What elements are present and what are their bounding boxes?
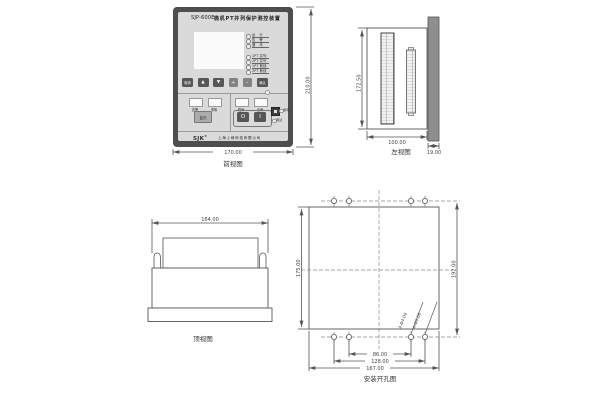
- mount-hole-ticks: [334, 196, 425, 343]
- mount-centerlines: [301, 190, 460, 349]
- key-plus: +: [229, 78, 239, 87]
- key-confirm: 确认: [257, 78, 268, 87]
- led-indicator: [246, 70, 251, 75]
- pt-led-row: 2PT 断线: [246, 69, 272, 74]
- led-indicator: [246, 44, 251, 49]
- mount-view: 175.00 192.00 86.00 128.00 167.00 4-Φ4.0…: [296, 190, 460, 383]
- front-view-caption: 前视图: [223, 159, 243, 168]
- top-clip-left: [154, 253, 160, 268]
- mount-dimension-lines: [298, 203, 457, 371]
- top-flange: [148, 308, 272, 322]
- side-body: [367, 28, 427, 129]
- device-model: SJP-600E: [191, 15, 215, 21]
- debug-label: 调试: [276, 118, 282, 122]
- key-down-icon: ▼: [213, 78, 224, 87]
- led-label: 2PT 断线: [252, 69, 269, 74]
- panel-indicator-dot: [265, 90, 270, 95]
- mount-hole-label-outer: 4-Φ6.00: [411, 312, 422, 330]
- switch-on-key: I: [254, 112, 266, 122]
- dim-top-width: 164.00: [201, 217, 219, 223]
- mount-view-caption: 安装开孔图: [364, 374, 397, 383]
- top-body: [152, 268, 268, 308]
- dim-mount-inner-span: 86.00: [373, 352, 387, 358]
- side-connector-tab: [409, 113, 414, 116]
- panel-divider-vertical: [230, 93, 231, 131]
- switch-off-key: O: [237, 112, 249, 122]
- dim-mount-mid-span: 128.00: [371, 359, 389, 365]
- reset-key: 复归: [194, 111, 212, 123]
- dim-mount-hole-rows: 192.00: [452, 261, 458, 279]
- dim-front-height: 210.00: [306, 77, 312, 95]
- comm-port-inner: [274, 110, 277, 113]
- comm-label: 通讯: [283, 108, 289, 112]
- status-led-row: 通 讯: [246, 43, 272, 48]
- device-front-panel: SJP-600E 微机PT并列保护测控装置 运 行 告 警 通 讯 1PT 并列…: [178, 12, 288, 141]
- side-terminal-block: [381, 33, 394, 124]
- top-view-caption: 顶视图: [193, 334, 213, 343]
- device-title: 微机PT并列保护测控装置: [214, 15, 281, 22]
- mount-hole-label-inner: 4-Φ4.00: [397, 312, 408, 330]
- led-label: 通 讯: [252, 43, 269, 48]
- logo-strip-divider: [178, 131, 288, 132]
- drawing-sheet: 170.00 210.00 前视图 172.50 100.00: [0, 0, 600, 400]
- registered-mark: ®: [204, 134, 207, 138]
- key-cancel: 取消: [182, 78, 193, 87]
- dim-side-panel: 19.00: [427, 150, 441, 156]
- dim-mount-cutout-height: 175.00: [296, 260, 302, 278]
- dim-mount-outer-span: 167.00: [366, 366, 384, 372]
- company-name: 上海上继科技有限公司: [218, 136, 261, 141]
- key-minus: -: [243, 78, 253, 87]
- top-clip-right: [260, 253, 266, 268]
- panel-divider-horizontal: [178, 93, 288, 94]
- dim-side-height: 172.50: [357, 75, 363, 93]
- top-view: 164.00 顶视图: [148, 217, 272, 343]
- top-lid: [163, 238, 258, 268]
- side-connector: [407, 50, 416, 113]
- dim-side-depth: 100.00: [388, 140, 406, 146]
- key-up-icon: ▲: [198, 78, 209, 87]
- brand-logo: SJK®: [193, 134, 207, 142]
- linework-layer: 170.00 210.00 前视图 172.50 100.00: [0, 0, 600, 400]
- side-view: 172.50 100.00 19.00 左视图: [357, 17, 442, 156]
- side-view-caption: 左视图: [391, 147, 411, 156]
- side-front-panel: [428, 17, 439, 141]
- brand-logo-text: SJK: [193, 135, 204, 141]
- lcd-screen: [194, 32, 244, 69]
- mount-holes: [331, 198, 427, 339]
- dim-front-width: 170.00: [224, 150, 242, 156]
